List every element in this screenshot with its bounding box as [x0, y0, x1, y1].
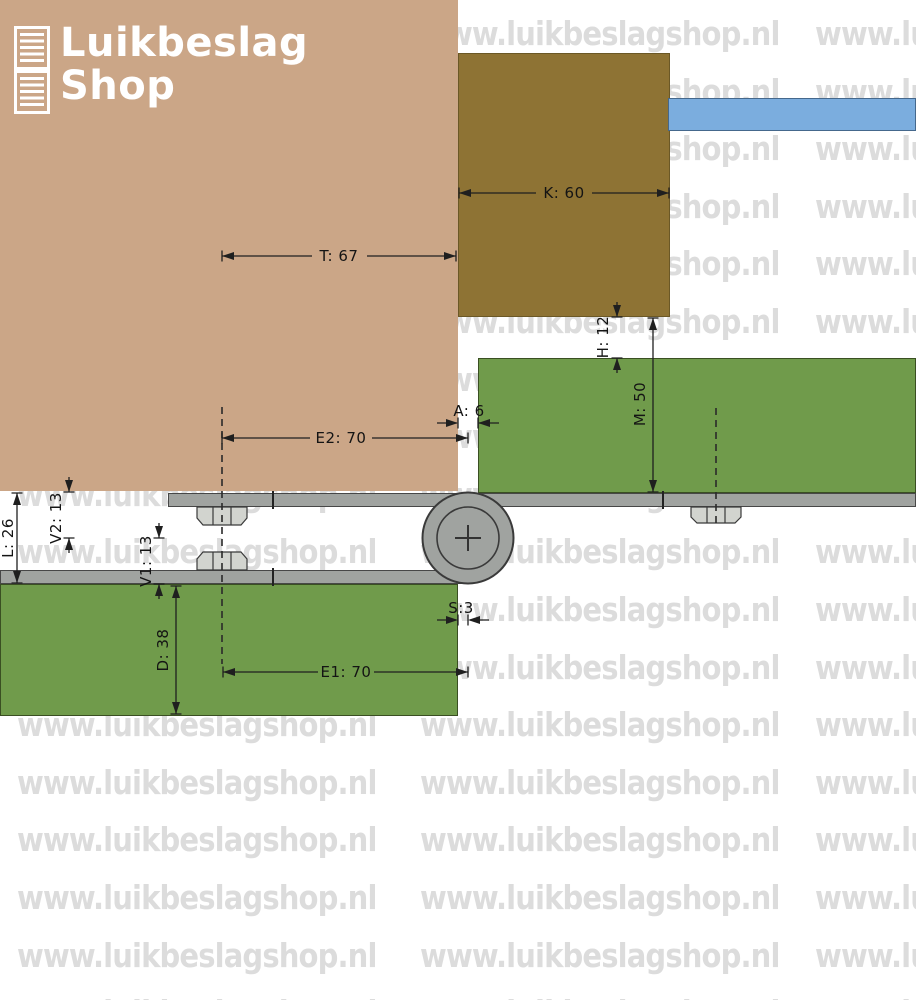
logo-line2: Shop [60, 65, 308, 108]
dim-label-k: K: 60 [543, 184, 584, 202]
dim-label-e2: E2: 70 [316, 429, 367, 447]
shutter-icon [14, 26, 50, 114]
dim-label-t: T: 67 [320, 247, 359, 265]
dimension-end-ticks [12, 188, 670, 715]
dimension-arrowheads [13, 189, 669, 714]
shutter-icon-panel-bottom [14, 70, 50, 114]
dim-label-v2: V2: 13 [47, 492, 65, 544]
dim-label-v1: V1: 13 [137, 535, 155, 587]
shutter-icon-panel-top [14, 26, 50, 70]
dimension-overlay [0, 0, 916, 1000]
logo: Luikbeslag Shop [14, 22, 308, 114]
dimension-lines [17, 193, 669, 714]
dim-label-m: M: 50 [631, 382, 649, 426]
dim-label-s: S:3 [448, 599, 474, 617]
dim-label-l: L: 26 [0, 518, 17, 558]
dim-label-d: D: 38 [154, 629, 172, 672]
logo-line1: Luikbeslag [60, 22, 308, 65]
dim-label-a: A: 6 [453, 402, 484, 420]
hinge-knuckle [423, 493, 514, 584]
dim-label-h: H: 12 [594, 316, 612, 359]
dim-label-e1: E1: 70 [321, 663, 372, 681]
logo-text: Luikbeslag Shop [60, 22, 308, 114]
hinge-technical-drawing: www.luikbeslagshop.nlwww.luikbeslagshop.… [0, 0, 916, 1000]
